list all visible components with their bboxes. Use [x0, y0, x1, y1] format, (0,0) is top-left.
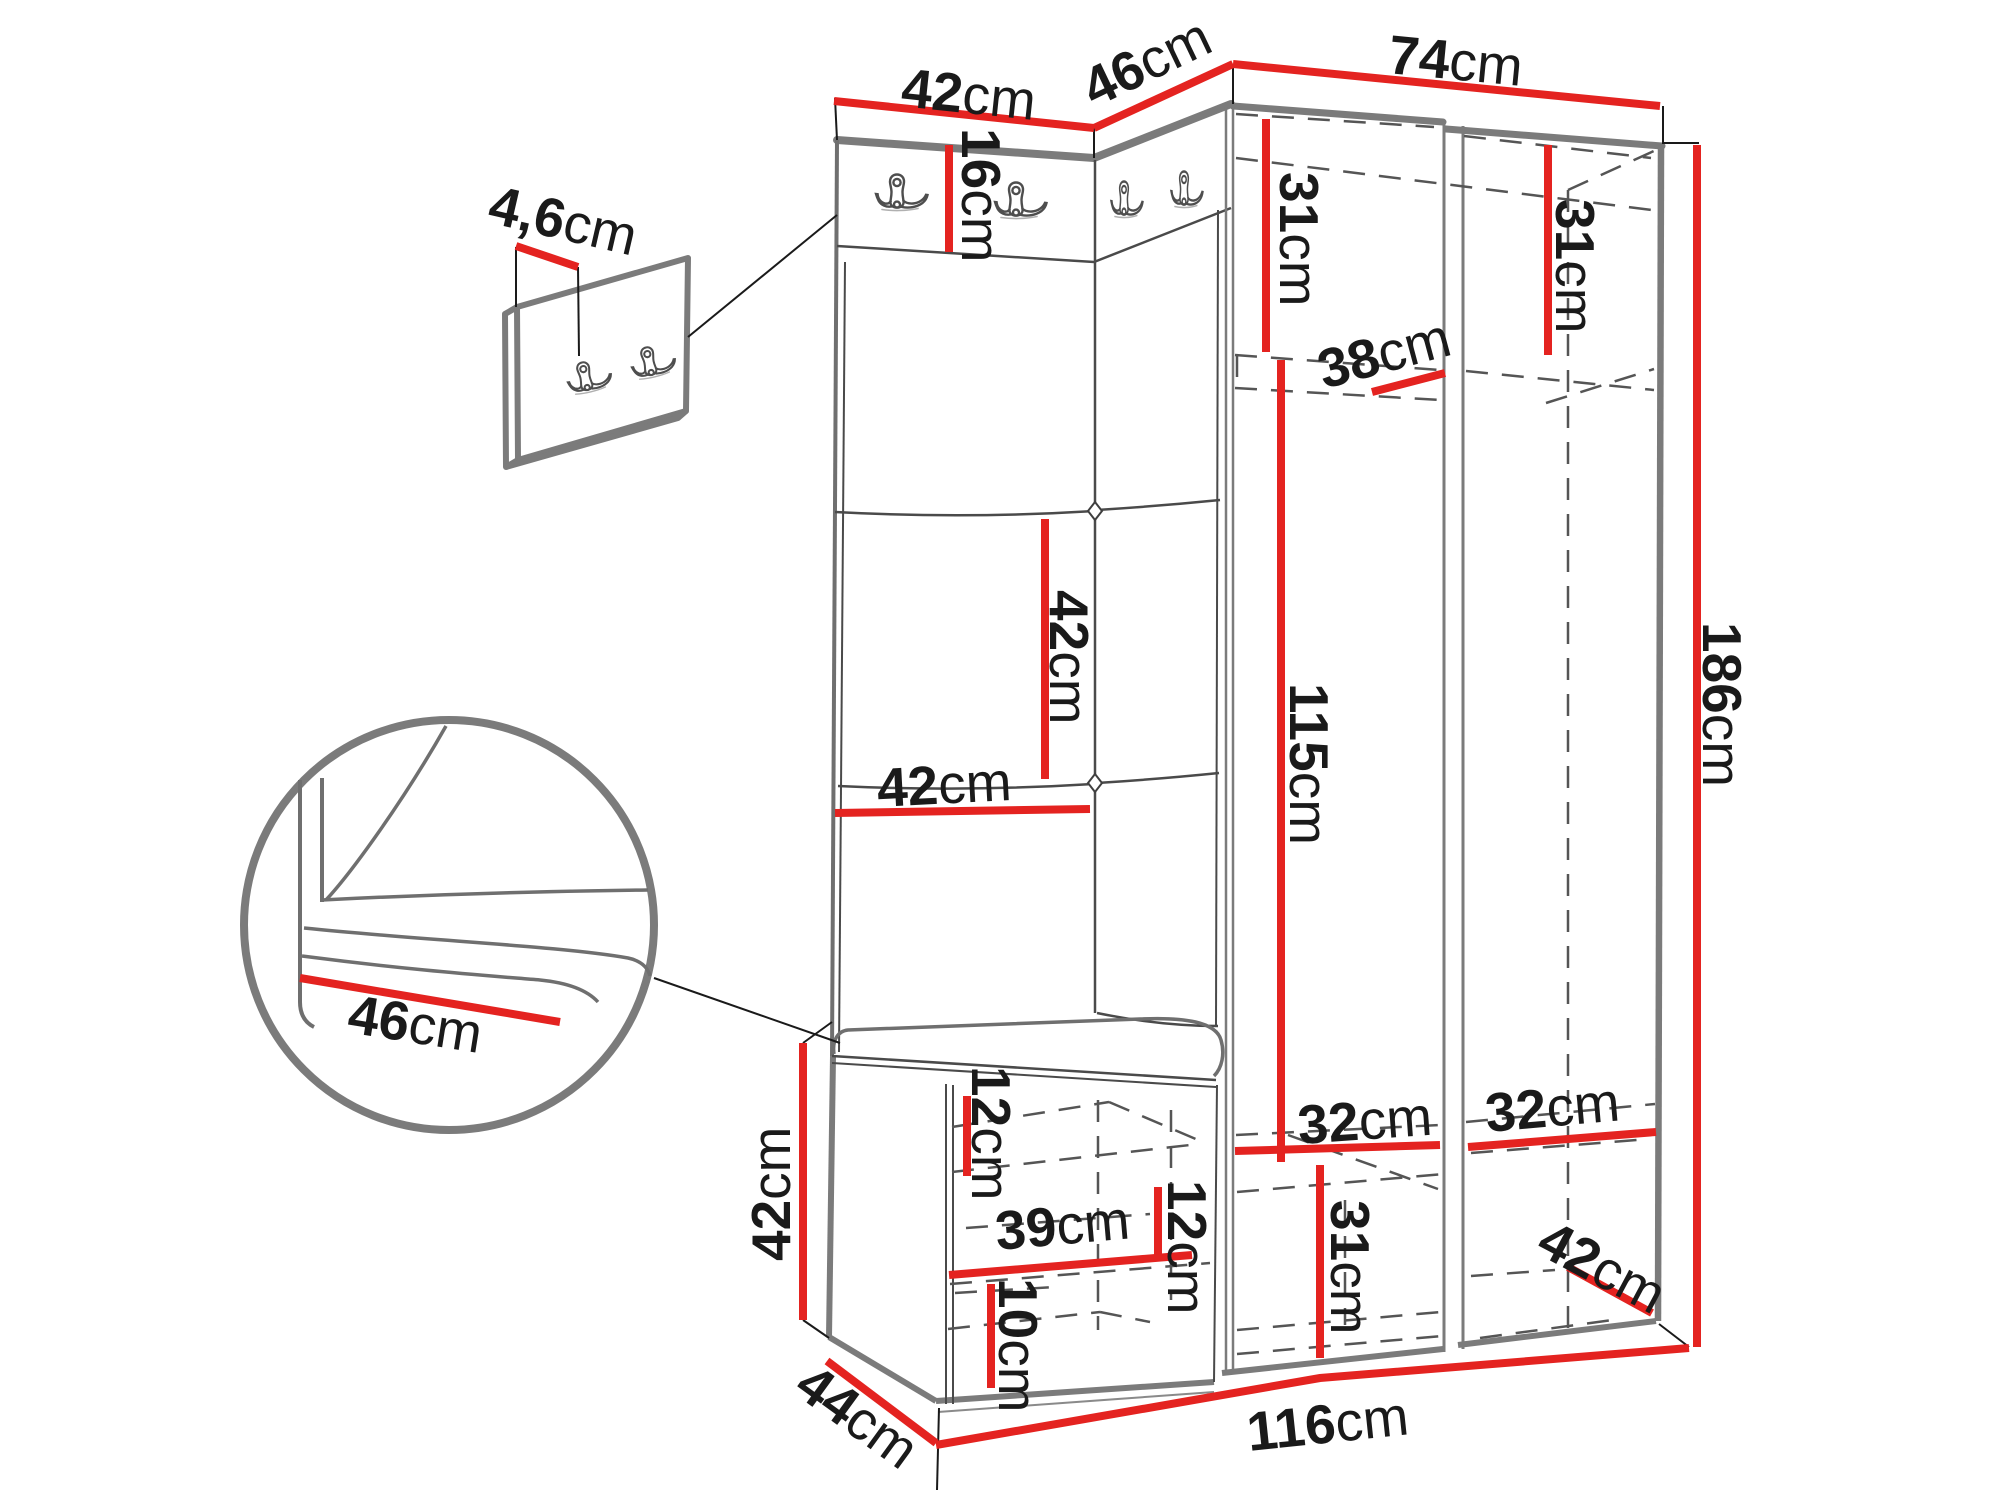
svg-text:31cm: 31cm: [1544, 199, 1606, 334]
svg-text:42cm: 42cm: [875, 750, 1013, 819]
svg-text:186cm: 186cm: [1691, 622, 1753, 787]
svg-text:16cm: 16cm: [950, 128, 1012, 263]
svg-text:74cm: 74cm: [1386, 23, 1526, 98]
svg-text:12cm: 12cm: [960, 1066, 1022, 1201]
svg-text:32cm: 32cm: [1483, 1070, 1622, 1143]
svg-text:12cm: 12cm: [1156, 1180, 1218, 1315]
svg-text:31cm: 31cm: [1319, 1200, 1381, 1335]
svg-text:42cm: 42cm: [1038, 590, 1100, 725]
svg-text:32cm: 32cm: [1296, 1085, 1435, 1156]
svg-text:115cm: 115cm: [1278, 683, 1340, 845]
svg-text:31cm: 31cm: [1268, 172, 1330, 307]
svg-text:39cm: 39cm: [993, 1188, 1132, 1261]
svg-text:10cm: 10cm: [987, 1278, 1049, 1413]
svg-text:42cm: 42cm: [740, 1126, 802, 1261]
